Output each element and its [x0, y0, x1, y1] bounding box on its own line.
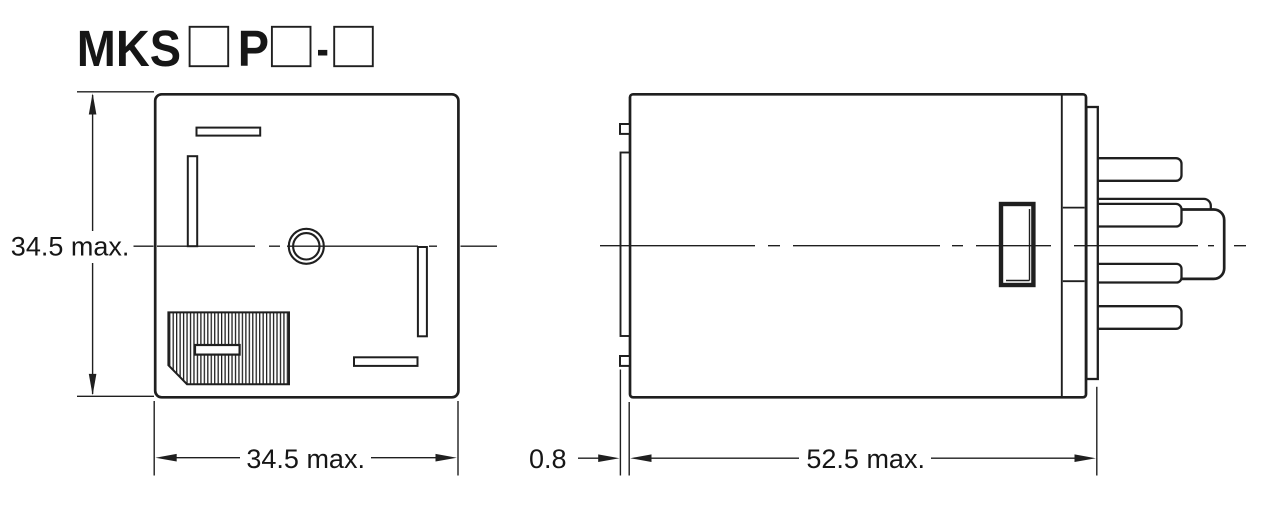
svg-text:34.5 max.: 34.5 max.: [246, 444, 365, 474]
svg-text:P: P: [238, 21, 269, 77]
svg-text:34.5 max.: 34.5 max.: [11, 231, 130, 261]
svg-text:52.5 max.: 52.5 max.: [806, 444, 925, 474]
svg-text:MKS: MKS: [77, 21, 181, 77]
svg-text:0.8: 0.8: [529, 444, 567, 474]
